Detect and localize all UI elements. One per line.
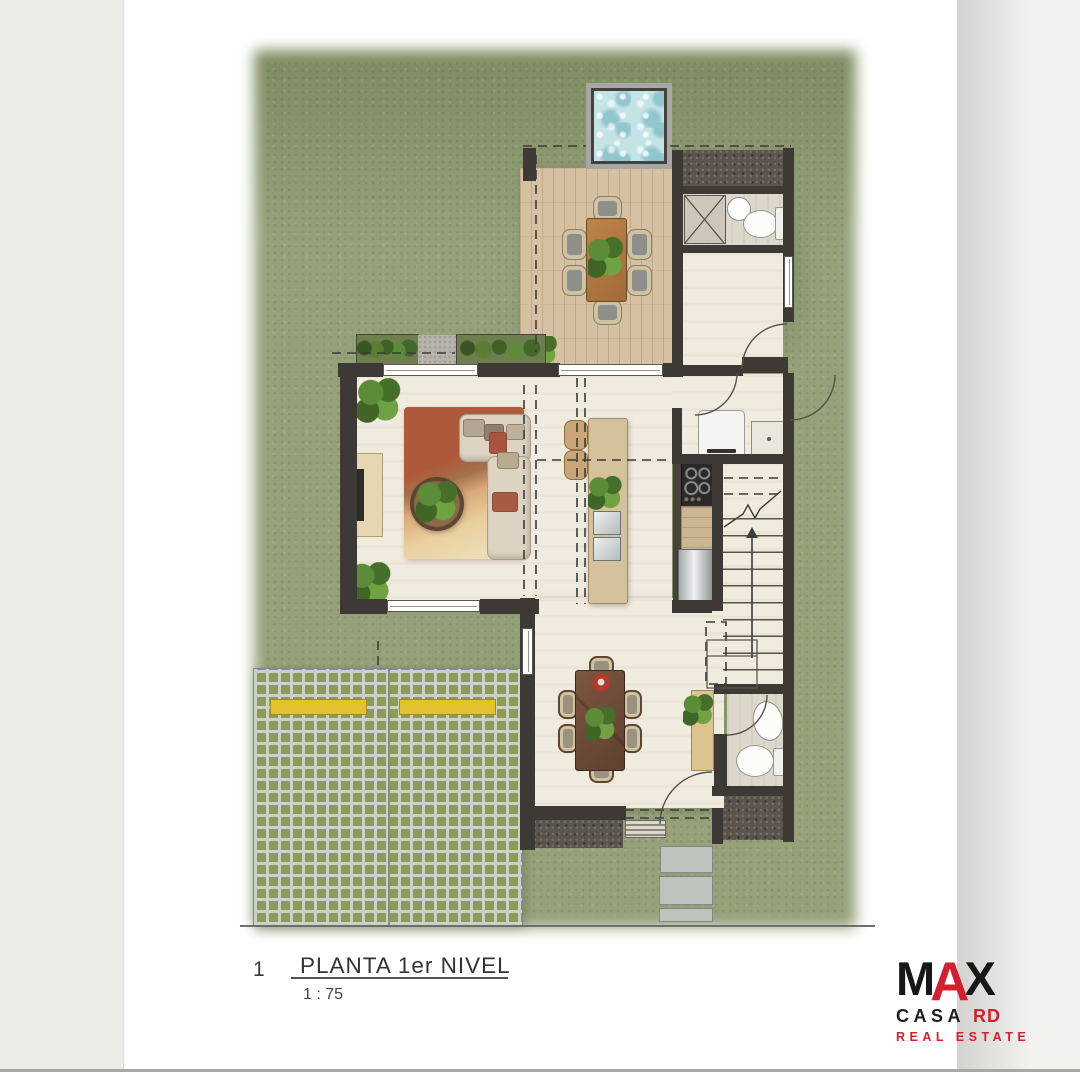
- parking-divider-line: [388, 668, 390, 926]
- washing-machine: [698, 410, 745, 458]
- terrace-chair: [593, 300, 622, 325]
- page-bottom-edge: [0, 1069, 1080, 1072]
- wall-segment: [714, 684, 793, 694]
- planter-box-right: [456, 334, 546, 365]
- window: [784, 256, 793, 308]
- island-plant: [588, 476, 624, 512]
- floor-plan-sheet: 1 PLANTA 1er NIVEL 1 : 75 MAX CASARD REA…: [0, 0, 1080, 1080]
- tv: [356, 469, 364, 521]
- realtor-logo: MAX CASARD REAL ESTATE: [896, 950, 1056, 1043]
- wall-segment: [340, 599, 387, 614]
- page-margin-left: [0, 0, 124, 1069]
- kitchen-sink-basin: [593, 537, 621, 561]
- logo-letter-x: X: [965, 952, 993, 1005]
- wall-segment: [783, 796, 794, 842]
- entry-step-2: [659, 876, 713, 905]
- coffee-table-plant: [416, 481, 460, 525]
- sofa-pillow-red: [489, 432, 507, 454]
- entry-mat: [625, 820, 666, 838]
- sliding-door-window: [558, 364, 663, 376]
- living-plant-top: [357, 378, 403, 426]
- dining-chair: [622, 724, 642, 753]
- wall-segment: [714, 734, 727, 789]
- terrace-chair: [562, 229, 587, 260]
- terrace-chair: [627, 265, 652, 296]
- wall-segment: [712, 808, 723, 844]
- wall-segment: [672, 600, 712, 613]
- concrete-pad: [418, 335, 457, 365]
- wall-segment: [672, 454, 786, 464]
- bar-stool: [564, 450, 588, 480]
- wall-segment: [672, 150, 683, 376]
- wall-segment: [478, 363, 560, 377]
- gravel-strip-top: [683, 150, 783, 186]
- wall-segment: [783, 373, 794, 797]
- title-underline: [291, 977, 508, 979]
- terrace-table-plant: [588, 236, 624, 282]
- sofa-cushion-red: [492, 492, 518, 512]
- laundry-sink: [751, 421, 786, 456]
- terrace-chair: [562, 265, 587, 296]
- page-margin-right: [957, 0, 1080, 1069]
- logo-letter-m: M: [896, 952, 932, 1005]
- wall-segment: [712, 454, 723, 611]
- toilet-top: [743, 210, 778, 238]
- toilet-bottom: [736, 745, 774, 777]
- sofa-pillow: [497, 452, 519, 469]
- decor-bowl: [592, 674, 610, 692]
- wall-living-left: [340, 363, 357, 614]
- dining-chair: [622, 690, 642, 719]
- plunge-pool: [586, 83, 672, 169]
- gravel-strip-bottom-right: [723, 796, 783, 840]
- terrace-chair: [627, 229, 652, 260]
- stair-treads: [723, 518, 783, 686]
- cooktop: [681, 463, 714, 508]
- wall-segment: [672, 408, 682, 455]
- gravel-strip-bottom-left: [533, 820, 623, 848]
- pool-water: [594, 91, 664, 161]
- wall-segment: [663, 363, 683, 377]
- shower: [684, 195, 726, 244]
- entry-step-1: [660, 846, 713, 873]
- dining-table-plant: [585, 706, 617, 744]
- wall-segment: [672, 245, 794, 253]
- wall-segment: [742, 357, 788, 373]
- sofa-pillow: [506, 424, 525, 440]
- ground-line: [240, 925, 875, 927]
- planter-box-left: [356, 334, 419, 365]
- logo-subline: CASARD: [896, 1007, 1056, 1025]
- kitchen-sink-basin: [593, 511, 621, 535]
- wall-segment: [712, 786, 793, 796]
- wall-segment: [533, 806, 626, 820]
- logo-rd: RD: [973, 1006, 1001, 1026]
- wall-segment: [672, 186, 794, 194]
- drawing-title: PLANTA 1er NIVEL: [300, 953, 511, 979]
- sideboard-plant: [683, 694, 715, 728]
- bar-stool: [564, 420, 588, 450]
- drawing-scale: 1 : 75: [303, 986, 343, 1004]
- hall-floor: [683, 252, 783, 365]
- entry-step-3: [659, 908, 713, 922]
- sofa-pillow: [463, 419, 485, 437]
- logo-wordmark: MAX: [896, 950, 1056, 1005]
- parking-stop-right: [399, 699, 496, 715]
- logo-letter-a: A: [930, 951, 966, 1012]
- wall-segment: [338, 363, 383, 377]
- parking-stop-left: [270, 699, 367, 715]
- refrigerator: [678, 549, 714, 603]
- window: [387, 600, 480, 612]
- logo-tagline: REAL ESTATE: [896, 1031, 1056, 1044]
- window: [522, 628, 533, 675]
- sheet-number: 1: [253, 958, 265, 982]
- window: [383, 364, 478, 376]
- kitchen-counter: [681, 506, 714, 551]
- wall-segment: [523, 148, 536, 181]
